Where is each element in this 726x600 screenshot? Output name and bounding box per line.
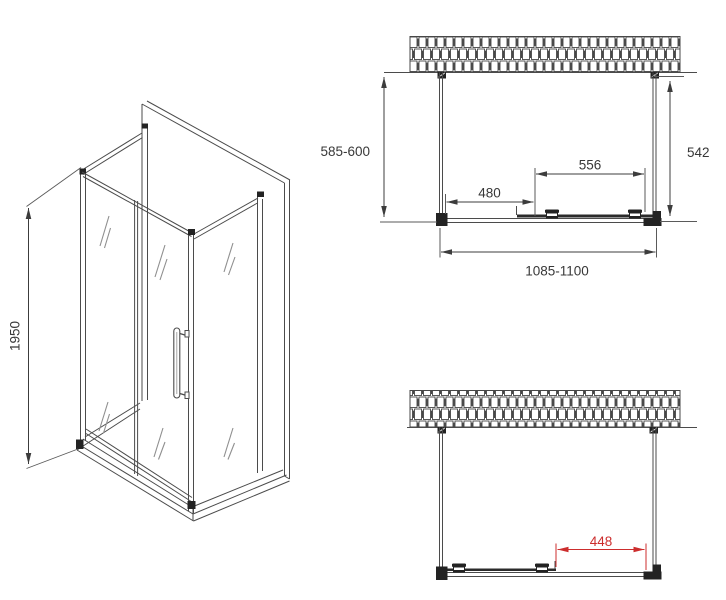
door-rail — [437, 218, 662, 222]
dimension-fixed-width: 480 — [446, 186, 534, 215]
corner-fitting-left — [436, 213, 448, 226]
corner-fitting-left — [436, 567, 448, 581]
dimension-label-overall-width: 1085-1100 — [525, 264, 589, 279]
door-roller — [628, 210, 642, 219]
dimension-overall-width: 1085-1100 — [440, 228, 657, 279]
door-handle — [174, 328, 189, 399]
plan-view-open: 448 — [407, 391, 697, 581]
dimension-opening-width: 448 — [556, 534, 646, 570]
door-rail — [437, 572, 662, 576]
technical-drawing: 1950 — [0, 0, 726, 600]
side-panel-right — [653, 428, 656, 572]
dimension-left-depth: 585-600 — [320, 77, 437, 222]
side-panel-right — [653, 73, 656, 219]
door-roller — [545, 210, 559, 219]
dimension-label-left-depth: 585-600 — [320, 144, 370, 159]
door-roller — [452, 564, 466, 573]
side-panel-left — [439, 73, 442, 217]
dimension-label-right-depth: 542 — [687, 145, 710, 160]
dimension-right-depth: 542 — [654, 77, 710, 217]
dimension-label-opening-width: 448 — [590, 534, 613, 549]
dimension-label-height: 1950 — [8, 321, 23, 351]
dimension-label-door-width: 556 — [579, 158, 602, 173]
corner-fitting-right — [644, 211, 662, 226]
dimension-door-width: 556 — [535, 158, 645, 217]
isometric-view: 1950 — [8, 101, 291, 521]
technical-drawing-page: 1950 — [0, 0, 726, 600]
wall-hatch — [410, 37, 680, 73]
height-dimension: 1950 — [8, 168, 82, 469]
dimension-label-fixed-width: 480 — [478, 186, 501, 201]
side-panel-left — [439, 428, 442, 571]
plan-view-closed: 585-600 542 480 556 1085-1100 — [320, 37, 709, 279]
wall-hatch — [410, 391, 680, 428]
door-roller — [535, 564, 549, 573]
enclosure-frame — [76, 101, 290, 521]
